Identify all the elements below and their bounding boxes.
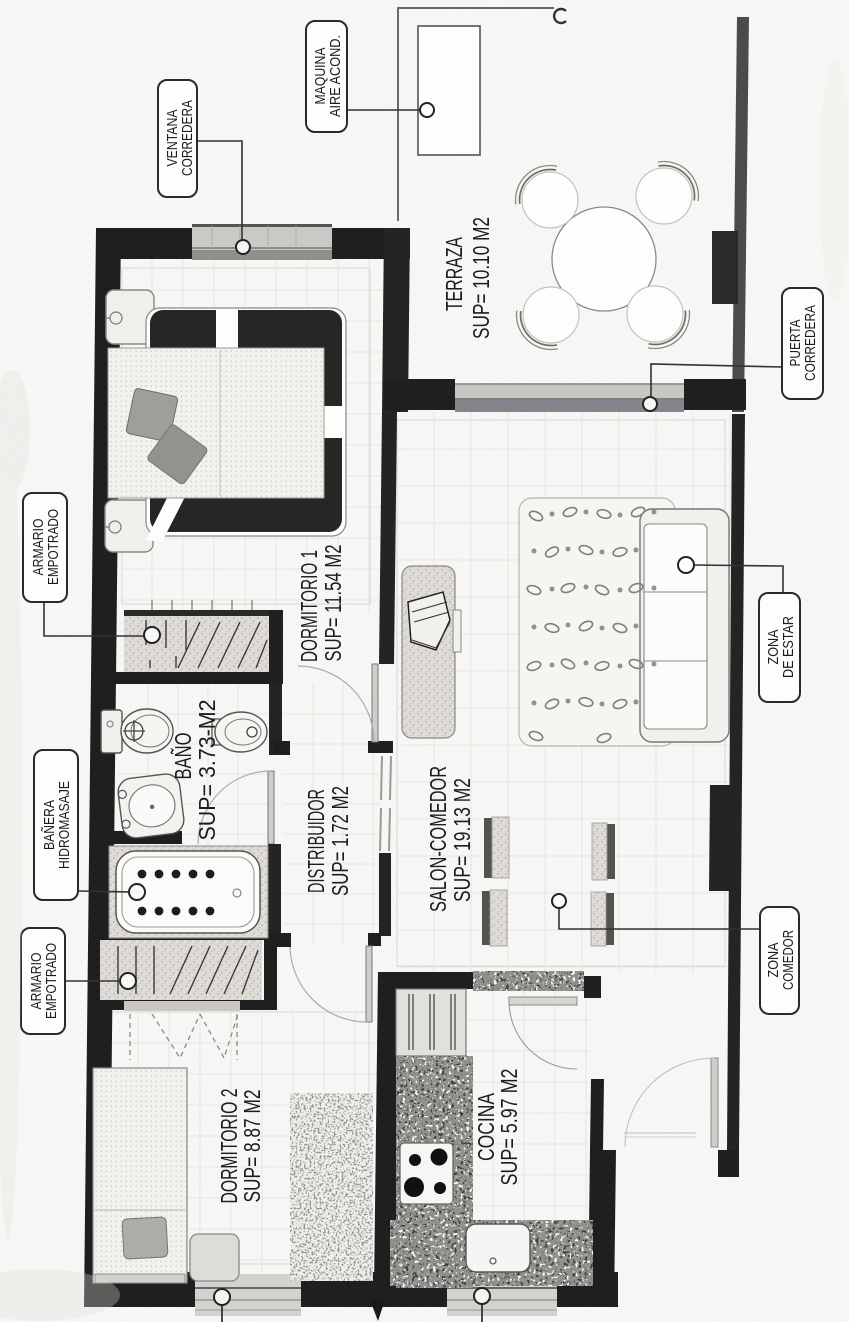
svg-text:SUP= 8.87 M2: SUP= 8.87 M2 (239, 1090, 265, 1203)
svg-text:SUP= 3.73-M2: SUP= 3.73-M2 (194, 700, 220, 841)
svg-text:SALON-COMEDOR: SALON-COMEDOR (425, 766, 451, 912)
svg-text:SUP= 11.54 M2: SUP= 11.54 M2 (320, 545, 346, 662)
svg-text:CORREDERA: CORREDERA (802, 305, 819, 381)
svg-text:BAÑO: BAÑO (170, 733, 196, 780)
svg-text:DORMITORIO 1: DORMITORIO 1 (296, 550, 322, 662)
svg-text:SUP= 5.97 M2: SUP= 5.97 M2 (496, 1069, 522, 1186)
svg-text:SUP= 19.13 M2: SUP= 19.13 M2 (449, 778, 475, 902)
svg-text:EMPOTRADO: EMPOTRADO (45, 509, 62, 585)
svg-text:HIDROMASAJE: HIDROMASAJE (56, 781, 73, 869)
svg-text:AIRE ACOND.: AIRE ACOND. (327, 35, 344, 117)
svg-text:CORREDERA: CORREDERA (179, 100, 196, 176)
svg-text:SUP= 1.72 M2: SUP= 1.72 M2 (327, 786, 353, 896)
svg-text:EMPOTRADO: EMPOTRADO (43, 943, 60, 1019)
svg-text:TERRAZA: TERRAZA (441, 237, 467, 311)
svg-text:DISTRIBUIDOR: DISTRIBUIDOR (303, 789, 329, 893)
svg-text:SUP= 10.10 M2: SUP= 10.10 M2 (468, 217, 494, 339)
svg-text:DE ESTAR: DE ESTAR (780, 616, 797, 678)
svg-text:COMEDOR: COMEDOR (780, 930, 797, 990)
